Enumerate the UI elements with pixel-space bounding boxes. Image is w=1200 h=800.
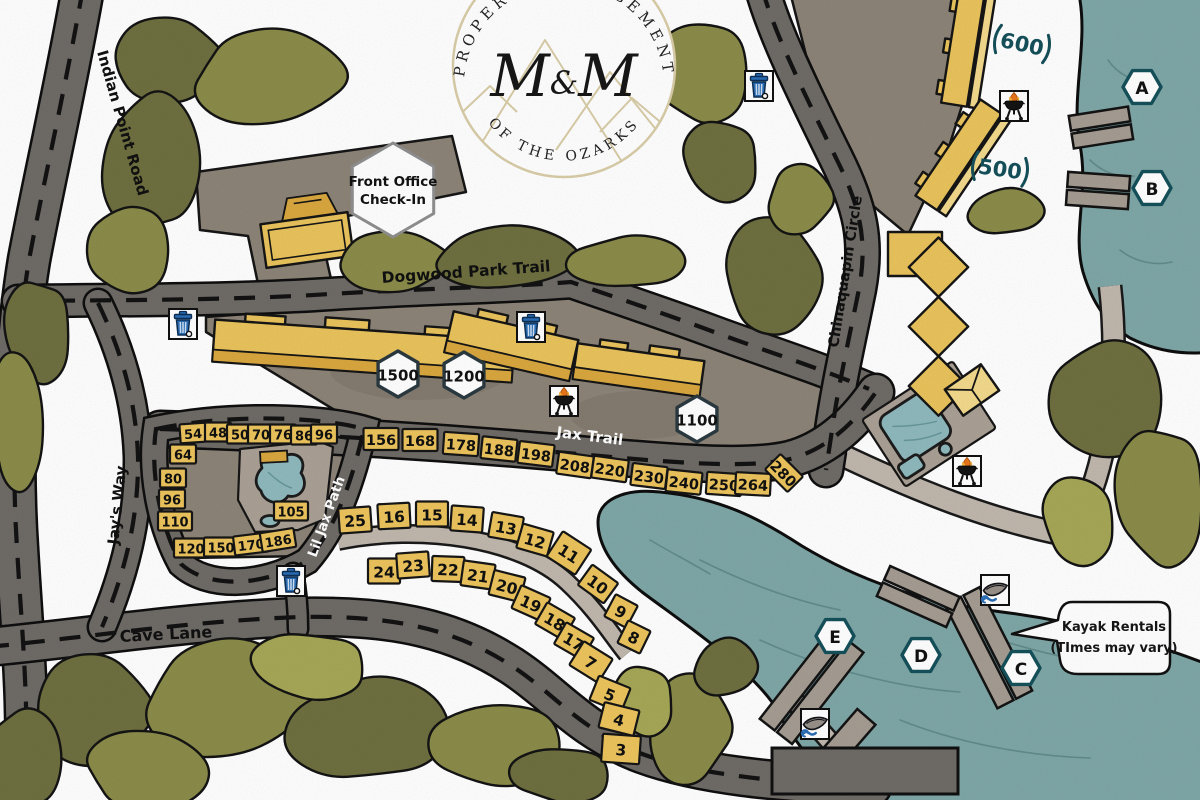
site-plate-120: 120 [174,539,208,558]
site-plate-3: 3 [601,734,641,765]
svg-text:15: 15 [421,506,443,524]
svg-text:178: 178 [445,437,476,455]
svg-text:1500: 1500 [377,366,419,384]
svg-text:48: 48 [209,427,227,442]
svg-text:120: 120 [177,543,204,558]
site-plate-25: 25 [338,506,372,533]
site-plate-110: 110 [158,512,192,531]
tree-cluster [509,749,607,800]
tree-cluster [694,638,758,696]
svg-text:13: 13 [494,518,518,539]
label-500: 500 [971,151,1029,186]
grill-icon [1000,91,1028,121]
svg-text:24: 24 [373,563,395,581]
svg-text:21: 21 [466,566,490,587]
tree-cluster [0,708,61,800]
trash-icon [169,309,197,339]
site-plate-22: 22 [432,556,465,582]
svg-text:B: B [1146,180,1159,200]
svg-text:96: 96 [163,494,181,509]
svg-text:1100: 1100 [676,411,718,429]
svg-text:110: 110 [161,516,188,531]
site-plate-208: 208 [556,452,594,479]
site-plate-220: 220 [591,456,629,483]
tree-cluster [1043,477,1113,566]
tree-cluster [87,207,168,293]
svg-text:23: 23 [402,557,425,576]
badge-1500: 1500 [377,351,419,397]
site-plate-240: 240 [665,469,702,495]
shore-parking [772,748,958,794]
svg-text:16: 16 [383,508,405,527]
site-plate-156: 156 [364,428,399,450]
tree-cluster [968,188,1045,233]
grill-icon [550,386,578,416]
svg-text:96: 96 [315,429,333,444]
svg-text:22: 22 [437,561,459,580]
site-plate-64: 64 [170,445,196,464]
svg-text:70: 70 [252,429,270,444]
svg-text:76: 76 [274,429,292,444]
trash-icon [517,312,545,342]
kayak-icon [981,575,1009,605]
map-canvas: PROPERTY MANAGEMENT OF THE OZARKS M&M 54… [0,0,1200,800]
svg-text:3: 3 [615,741,627,760]
site-plate-80: 80 [160,469,186,488]
svg-text:156: 156 [366,433,396,449]
site-plate-186: 186 [260,528,297,552]
svg-text:500: 500 [977,154,1024,184]
trash-icon [277,566,305,596]
dock-badge-B: B [1133,172,1171,205]
front-office-line1: Front Office [349,174,438,190]
svg-text:600: 600 [998,28,1046,61]
site-plate-96: 96 [159,490,185,509]
svg-text:54: 54 [184,427,203,443]
site-plate-105: 105 [274,502,308,521]
site-plate-14: 14 [450,505,484,532]
svg-text:25: 25 [344,512,367,531]
site-plate-168: 168 [403,429,438,451]
svg-text:150: 150 [207,542,234,557]
svg-text:188: 188 [483,442,515,461]
dock-badge-A: A [1123,71,1161,104]
svg-text:168: 168 [405,434,435,450]
tree-cluster [726,217,822,334]
site-plate-24: 24 [368,559,400,584]
resort-map: PROPERTY MANAGEMENT OF THE OZARKS M&M 54… [0,0,1200,800]
site-plate-178: 178 [443,432,479,456]
site-plate-264: 264 [735,472,771,496]
kayak-icon [801,709,829,739]
site-plate-23: 23 [396,551,430,578]
svg-text:A: A [1135,79,1149,99]
kayak-note-line2: (TImes may vary) [1050,641,1177,656]
svg-text:80: 80 [164,473,182,488]
site-plate-54: 54 [179,423,206,444]
grill-icon [953,456,981,486]
badge-1200: 1200 [443,352,485,398]
tree-cluster [195,29,348,125]
svg-text:D: D [914,647,928,667]
svg-text:240: 240 [668,475,700,494]
svg-text:1200: 1200 [443,367,485,385]
svg-text:264: 264 [737,477,768,495]
site-plate-188: 188 [480,436,517,462]
trash-icon [745,71,773,101]
badge-1100: 1100 [676,396,718,442]
site-plate-16: 16 [377,503,410,530]
dock-badge-D: D [902,639,940,672]
svg-text:E: E [829,628,841,648]
front-office-line2: Check-In [360,192,426,208]
dock-badge-E: E [816,620,854,653]
label-600: 600 [992,25,1052,64]
logo: PROPERTY MANAGEMENT OF THE OZARKS M&M [450,0,678,177]
svg-text:C: C [1015,660,1027,680]
site-plate-230: 230 [630,463,667,489]
tree-cluster [1115,431,1200,567]
site-plate-96: 96 [311,425,337,444]
tree-cluster [683,122,755,203]
svg-text:64: 64 [174,449,192,464]
svg-text:105: 105 [277,506,304,521]
svg-text:14: 14 [456,511,479,530]
kayak-note-line1: Kayak Rentals [1062,620,1166,635]
tree-cluster [566,235,685,285]
svg-text:50: 50 [231,429,249,444]
dock-badge-C: C [1002,652,1040,685]
site-plate-15: 15 [416,502,448,527]
site-plate-198: 198 [517,441,554,467]
